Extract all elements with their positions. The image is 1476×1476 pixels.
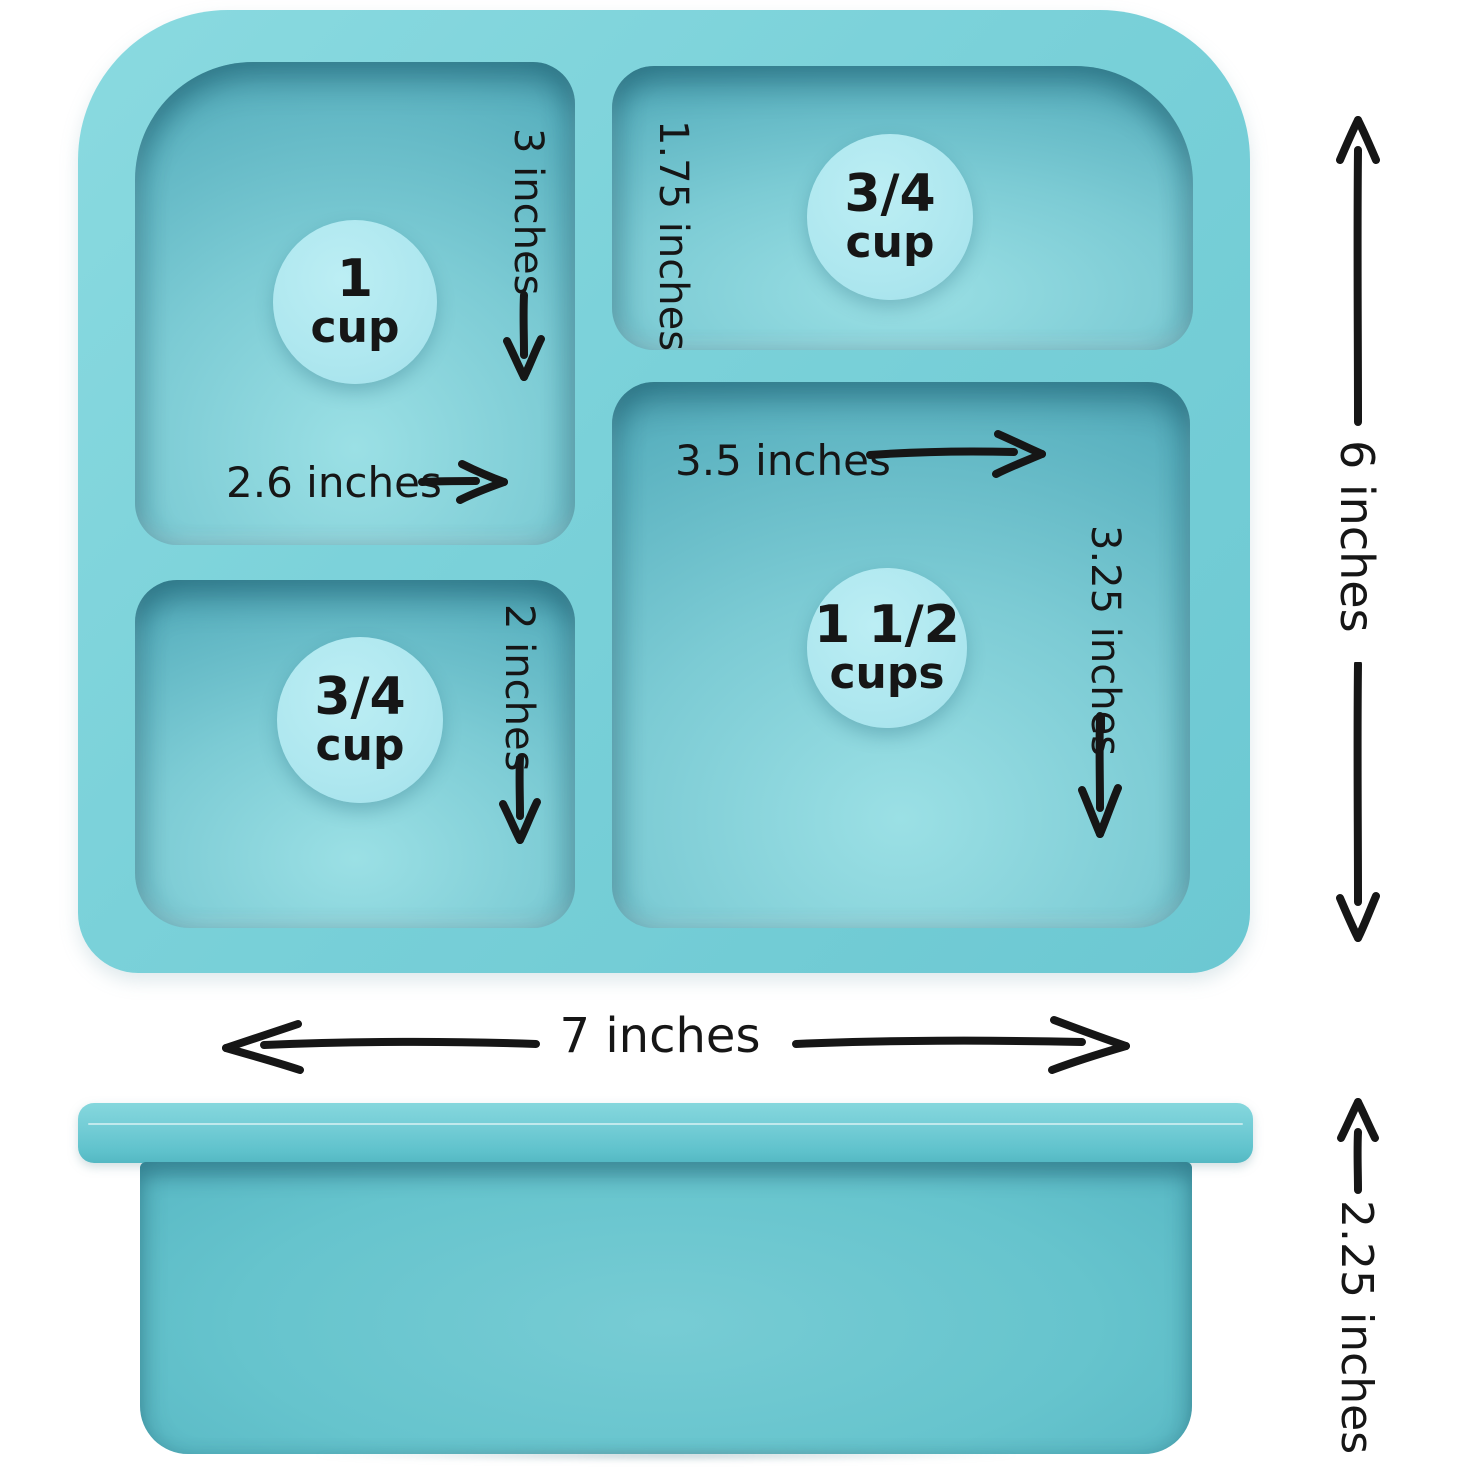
label-overall-height: 6 inches <box>1330 440 1384 633</box>
label-side-height: 2.25 inches <box>1331 1200 1382 1454</box>
arrow-up-icon <box>1330 112 1386 427</box>
arrow-right-icon <box>866 428 1048 478</box>
capacity-badge-bottom-left: 3/4 cup <box>277 637 443 803</box>
arrow-down-icon <box>496 756 544 846</box>
arrow-right-icon <box>418 456 508 506</box>
arrow-up-icon <box>1330 1096 1386 1194</box>
capacity-value: 3/4 <box>314 671 405 724</box>
label-top-left-width: 2.6 inches <box>226 458 442 507</box>
arrow-down-icon <box>1330 662 1386 942</box>
label-overall-width: 7 inches <box>540 1008 780 1064</box>
capacity-value: 1 1/2 <box>814 599 960 652</box>
box-side-view <box>140 1162 1192 1454</box>
capacity-unit: cup <box>846 221 935 266</box>
capacity-unit: cup <box>311 306 400 351</box>
label-top-right-height: 1.75 inches <box>650 120 696 351</box>
capacity-badge-top-left: 1 cup <box>273 220 437 384</box>
capacity-unit: cup <box>316 724 405 769</box>
label-top-left-height: 3 inches <box>505 128 551 295</box>
label-right-width: 3.5 inches <box>675 436 891 485</box>
arrow-down-icon <box>1074 712 1126 838</box>
label-bottom-left-height: 2 inches <box>496 604 542 771</box>
capacity-unit: cups <box>829 652 944 697</box>
capacity-badge-right: 1 1/2 cups <box>807 568 967 728</box>
arrow-left-icon <box>214 1014 544 1076</box>
capacity-badge-top-right: 3/4 cup <box>807 134 973 300</box>
lid-side-view <box>78 1103 1253 1163</box>
product-dimensions-diagram: 1 cup 3/4 cup 3/4 cup 1 1/2 cups 3 inche… <box>0 0 1476 1476</box>
capacity-value: 3/4 <box>844 168 935 221</box>
arrow-down-icon <box>500 291 548 383</box>
capacity-value: 1 <box>337 253 373 306</box>
ground-shadow <box>170 1446 1162 1464</box>
arrow-right-icon <box>792 1014 1136 1076</box>
